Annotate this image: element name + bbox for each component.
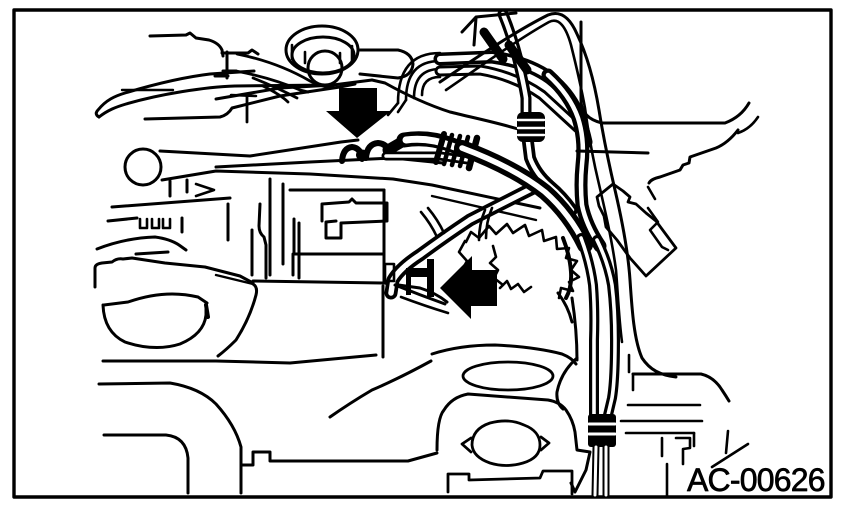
svg-text:AC-00626: AC-00626 — [687, 462, 825, 498]
